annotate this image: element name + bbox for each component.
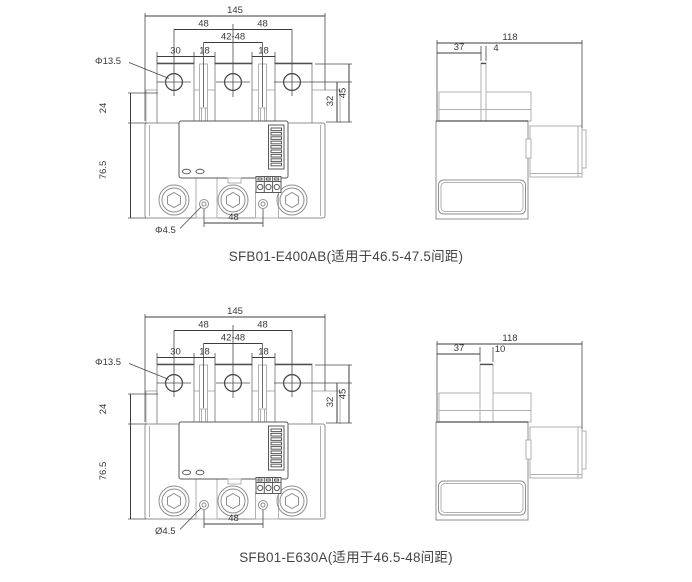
dim-side-tab-offset: 37: [454, 42, 465, 53]
dim-hole-dia: Φ13.5: [95, 357, 121, 368]
dim-bottom-pitch: 48: [228, 513, 239, 524]
drawing-2: 145 48 48 42-48 30 18 18 Φ13.5 24 76.5 3…: [0, 301, 692, 543]
dim-side-overall-width: 118: [502, 333, 517, 344]
dim-gap-left: 18: [199, 347, 210, 358]
dim-adjustable-pitch: 42-48: [221, 32, 245, 43]
dim-side-overall-width: 118: [502, 32, 517, 43]
figure-title-1: SFB01-E400AB(适用于46.5-47.5间距): [0, 245, 692, 265]
drawing-1: 145 48 48 42-48 30 18 18 Φ13.5 24 76.5 3…: [0, 0, 692, 242]
dim-adjustable-pitch: 42-48: [221, 333, 245, 344]
dim-small-hole-dia: Ø4.5: [155, 526, 176, 537]
dim-bottom-pitch: 48: [228, 212, 239, 223]
dim-body-height: 76.5: [98, 462, 109, 481]
dim-side-tab-offset: 37: [454, 343, 465, 354]
dim-gap-left: 18: [199, 46, 210, 57]
dim-overall-width: 145: [227, 306, 243, 317]
dim-side-tab-width: 10: [495, 344, 506, 355]
dim-pitch-left: 48: [198, 19, 209, 30]
side-view-outline: [436, 63, 586, 219]
figure-title-2: SFB01-E630A(适用于46.5-48间距): [0, 546, 692, 566]
drawing-1-canvas: 145 48 48 42-48 30 18 18 Φ13.5 24 76.5 3…: [0, 0, 692, 242]
dim-side-tab-width: 4: [493, 43, 498, 54]
dim-pitch-right: 48: [257, 19, 268, 30]
dim-top-offset: 24: [98, 103, 109, 114]
technical-drawing-page: { "drawings": [ { "title": "SFB01-E400AB…: [0, 0, 692, 582]
dim-top-offset: 24: [98, 404, 109, 415]
dim-pitch-right: 48: [257, 320, 268, 331]
dim-pitch-left: 48: [198, 320, 209, 331]
dim-right-offset: 32: [325, 397, 336, 408]
dim-tab-width: 30: [170, 347, 181, 358]
dim-tab-width: 30: [170, 46, 181, 57]
dim-overall-width: 145: [227, 5, 243, 16]
dim-right-offset: 32: [325, 96, 336, 107]
dim-small-hole-dia: Φ4.5: [155, 225, 176, 236]
dim-gap-right: 18: [258, 46, 269, 57]
dim-gap-right: 18: [258, 347, 269, 358]
dim-right-height: 45: [338, 389, 349, 400]
dim-hole-dia: Φ13.5: [95, 56, 121, 67]
dim-body-height: 76.5: [98, 161, 109, 180]
side-view-outline: [436, 364, 586, 520]
drawing-2-canvas: 145 48 48 42-48 30 18 18 Φ13.5 24 76.5 3…: [0, 301, 692, 543]
dim-right-height: 45: [338, 88, 349, 99]
